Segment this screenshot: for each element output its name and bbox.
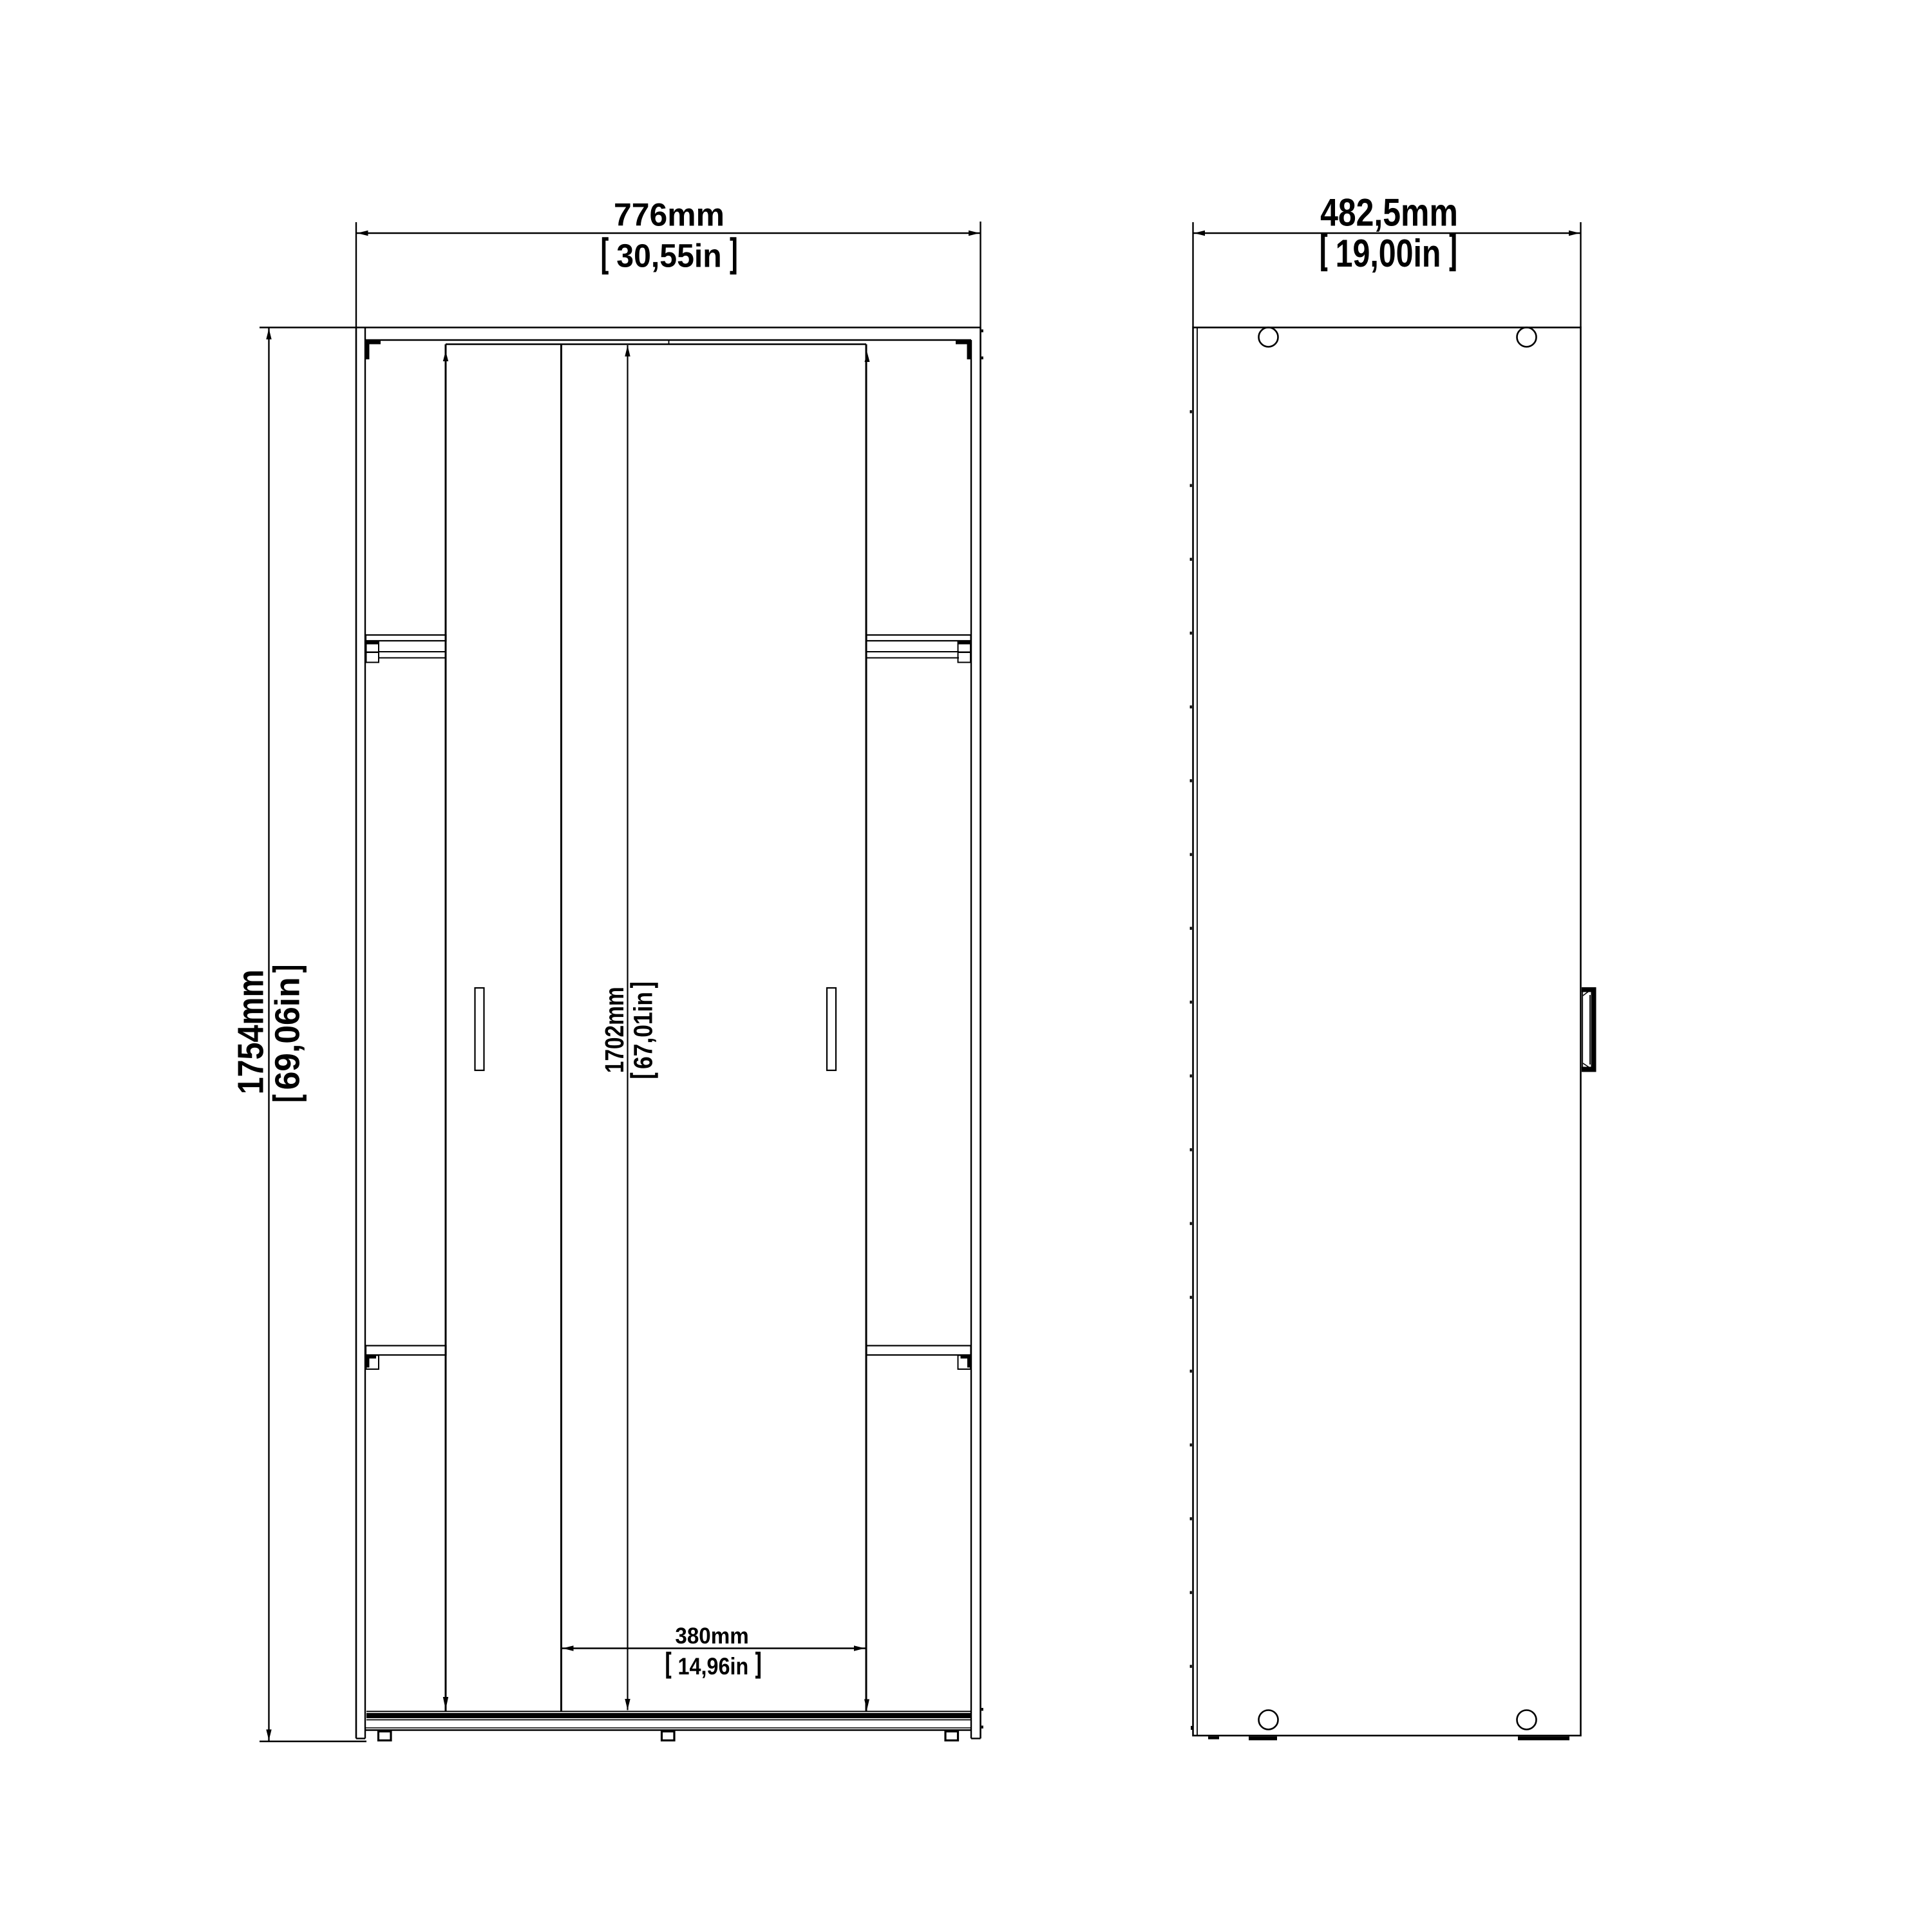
svg-text:69,06in: 69,06in <box>269 977 307 1090</box>
svg-text:67,01in: 67,01in <box>629 992 658 1069</box>
svg-text:1754mm: 1754mm <box>231 969 272 1094</box>
svg-text:482,5mm: 482,5mm <box>1320 191 1458 234</box>
svg-text:380mm: 380mm <box>675 1623 748 1649</box>
svg-text:14,96in: 14,96in <box>678 1653 749 1680</box>
svg-text:30,55in: 30,55in <box>616 238 721 274</box>
svg-text:19,00in: 19,00in <box>1336 232 1441 275</box>
svg-text:776mm: 776mm <box>614 197 724 233</box>
svg-text:1702mm: 1702mm <box>600 987 629 1073</box>
